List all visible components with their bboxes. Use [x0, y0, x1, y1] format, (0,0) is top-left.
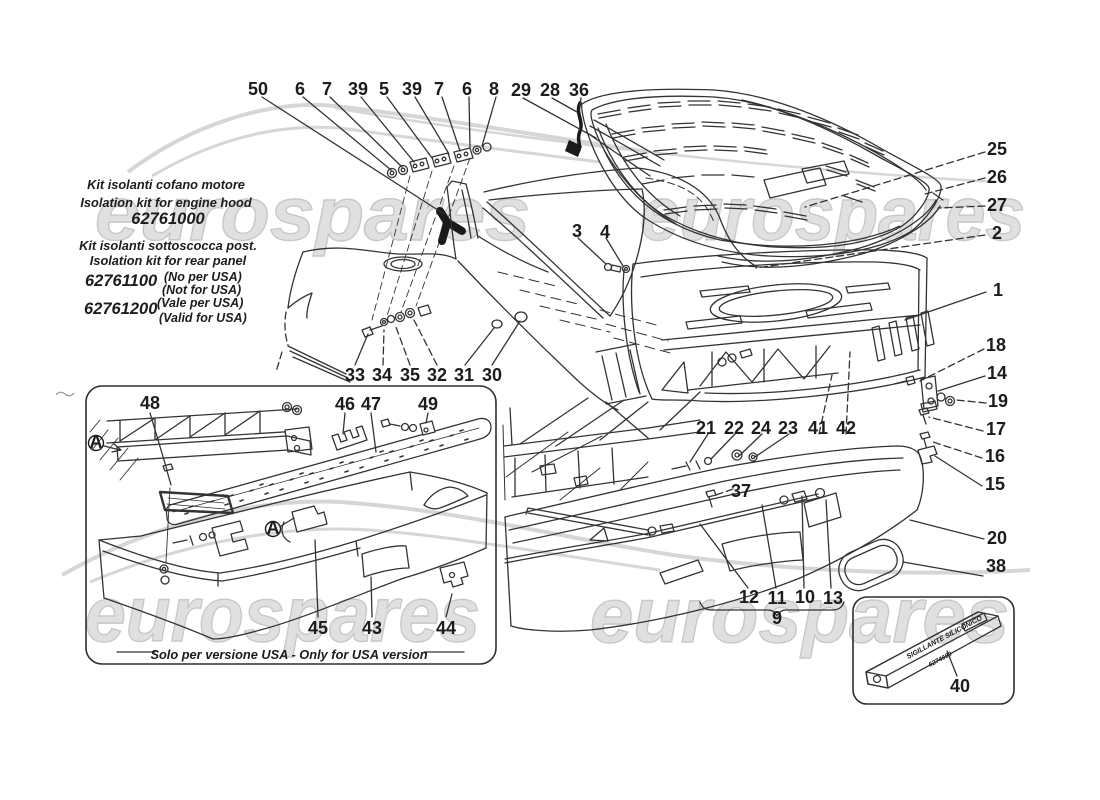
svg-text:42: 42 [836, 418, 856, 438]
svg-text:10: 10 [795, 587, 815, 607]
svg-text:14: 14 [987, 363, 1007, 383]
svg-text:27: 27 [987, 195, 1007, 215]
svg-text:45: 45 [308, 618, 328, 638]
svg-text:3: 3 [572, 221, 582, 241]
svg-text:37: 37 [731, 481, 751, 501]
svg-text:36: 36 [569, 80, 589, 100]
svg-text:39: 39 [402, 79, 422, 99]
svg-text:12: 12 [739, 587, 759, 607]
svg-text:15: 15 [985, 474, 1005, 494]
svg-text:(Not for USA): (Not for USA) [162, 283, 241, 297]
svg-text:7: 7 [322, 79, 332, 99]
svg-text:43: 43 [362, 618, 382, 638]
svg-text:40: 40 [950, 676, 970, 696]
svg-text:4: 4 [600, 222, 610, 242]
svg-text:28: 28 [540, 80, 560, 100]
svg-text:24: 24 [751, 418, 771, 438]
svg-text:Kit isolanti sottoscocca post.: Kit isolanti sottoscocca post. [79, 238, 257, 253]
svg-text:A: A [267, 518, 280, 538]
svg-text:20: 20 [987, 528, 1007, 548]
svg-text:1: 1 [993, 280, 1003, 300]
svg-text:19: 19 [988, 391, 1008, 411]
svg-text:Solo per versione USA - Only f: Solo per versione USA - Only for USA ver… [150, 647, 427, 662]
svg-text:62761200: 62761200 [84, 300, 158, 318]
svg-text:Isolation kit for engine hood: Isolation kit for engine hood [80, 195, 253, 210]
svg-text:46: 46 [335, 394, 355, 414]
svg-text:(Vale per USA): (Vale per USA) [157, 296, 243, 310]
svg-text:21: 21 [696, 418, 716, 438]
svg-text:6: 6 [295, 79, 305, 99]
svg-text:47: 47 [361, 394, 381, 414]
svg-text:44: 44 [436, 618, 456, 638]
svg-text:26: 26 [987, 167, 1007, 187]
svg-text:13: 13 [823, 588, 843, 608]
svg-text:11: 11 [767, 588, 786, 608]
svg-text:50: 50 [248, 79, 268, 99]
svg-text:22: 22 [724, 418, 744, 438]
svg-text:48: 48 [140, 393, 160, 413]
svg-text:18: 18 [986, 335, 1006, 355]
svg-text:5: 5 [379, 79, 389, 99]
svg-text:23: 23 [778, 418, 798, 438]
svg-text:49: 49 [418, 394, 438, 414]
svg-text:62761100: 62761100 [85, 272, 158, 290]
svg-text:30: 30 [482, 365, 502, 385]
svg-text:29: 29 [511, 80, 531, 100]
svg-text:6: 6 [462, 79, 472, 99]
svg-text:16: 16 [985, 446, 1005, 466]
svg-text:41: 41 [808, 418, 828, 438]
svg-text:39: 39 [348, 79, 368, 99]
svg-text:38: 38 [986, 556, 1006, 576]
svg-text:62761000: 62761000 [131, 210, 205, 228]
svg-text:17: 17 [986, 419, 1006, 439]
svg-text:eurospares: eurospares [590, 571, 1009, 659]
svg-text:eurospares: eurospares [85, 570, 480, 658]
svg-text:31: 31 [454, 365, 474, 385]
svg-text:25: 25 [987, 139, 1007, 159]
svg-text:34: 34 [372, 365, 392, 385]
svg-text:(Valid for USA): (Valid for USA) [159, 311, 247, 325]
svg-text:33: 33 [345, 365, 365, 385]
svg-text:35: 35 [400, 365, 420, 385]
svg-text:Isolation kit for rear panel: Isolation kit for rear panel [90, 253, 247, 268]
svg-text:Kit isolanti cofano motore: Kit isolanti cofano motore [87, 177, 245, 192]
svg-text:A: A [90, 432, 103, 452]
svg-text:(No per USA): (No per USA) [164, 270, 242, 284]
svg-text:9: 9 [772, 608, 782, 628]
svg-text:8: 8 [489, 79, 499, 99]
svg-text:2: 2 [992, 223, 1002, 243]
svg-text:7: 7 [434, 79, 444, 99]
svg-text:32: 32 [427, 365, 447, 385]
